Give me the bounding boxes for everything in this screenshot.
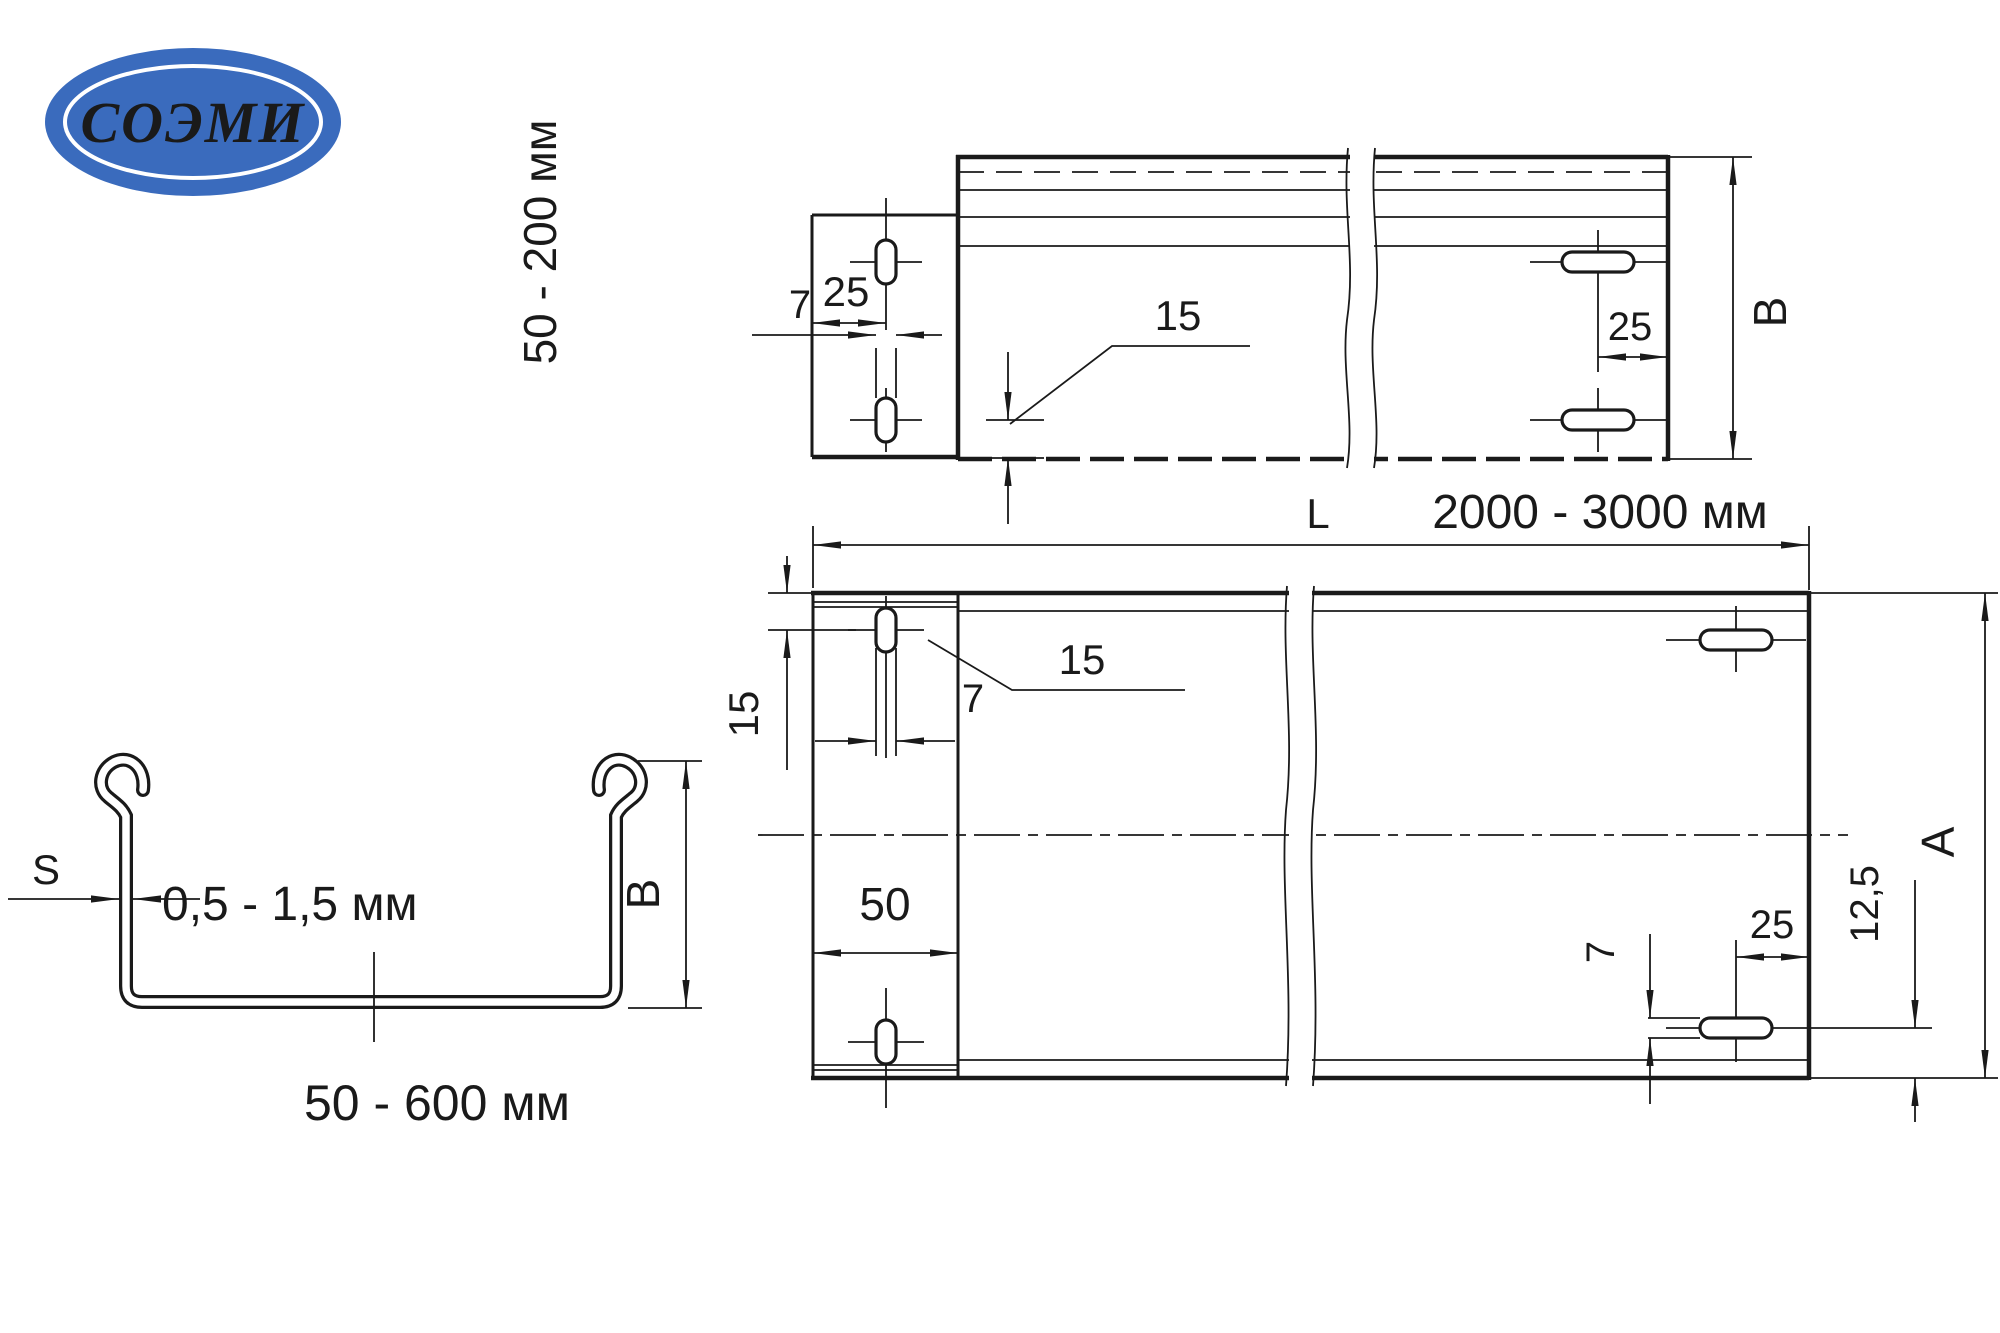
section-thickness-symbol: S	[32, 846, 60, 893]
plan-dim-15-leader: 15	[1059, 636, 1106, 683]
plan-dim-25: 25	[1750, 903, 1795, 947]
section-dim-B: В	[617, 879, 669, 910]
side-dim-B: В	[1744, 297, 1796, 328]
plan-dim-50: 50	[859, 878, 910, 930]
side-dim-25-tab: 25	[823, 268, 870, 315]
company-logo: СОЭМИ	[45, 48, 341, 196]
plan-dim-12-5: 12,5	[1843, 865, 1887, 943]
section-view: S 0,5 - 1,5 мм 50 - 600 мм В	[8, 760, 702, 1131]
section-width-range: 50 - 600 мм	[304, 1075, 570, 1131]
plan-dim-15-left: 15	[720, 691, 767, 738]
plan-length-prefix: L	[1306, 490, 1329, 537]
technical-drawing: СОЭМИ 50 - 200 мм	[0, 0, 2000, 1333]
plan-dim-7-bottom: 7	[1579, 941, 1623, 963]
plan-dim-A: А	[1912, 826, 1964, 857]
plan-view: L 2000 - 3000 мм	[720, 486, 1998, 1122]
plan-length-range: 2000 - 3000 мм	[1432, 486, 1768, 539]
logo-text: СОЭМИ	[80, 90, 305, 155]
side-height-range-label: 50 - 200 мм	[514, 120, 566, 365]
side-dim-25-right: 25	[1608, 305, 1653, 349]
side-dim-7: 7	[789, 283, 811, 327]
plan-dim-7-top: 7	[962, 677, 984, 721]
side-view: 50 - 200 мм 25	[514, 120, 1796, 524]
section-thickness-range: 0,5 - 1,5 мм	[162, 878, 417, 931]
side-dim-15: 15	[1155, 292, 1202, 339]
drawing-page: СОЭМИ 50 - 200 мм	[0, 0, 2000, 1333]
